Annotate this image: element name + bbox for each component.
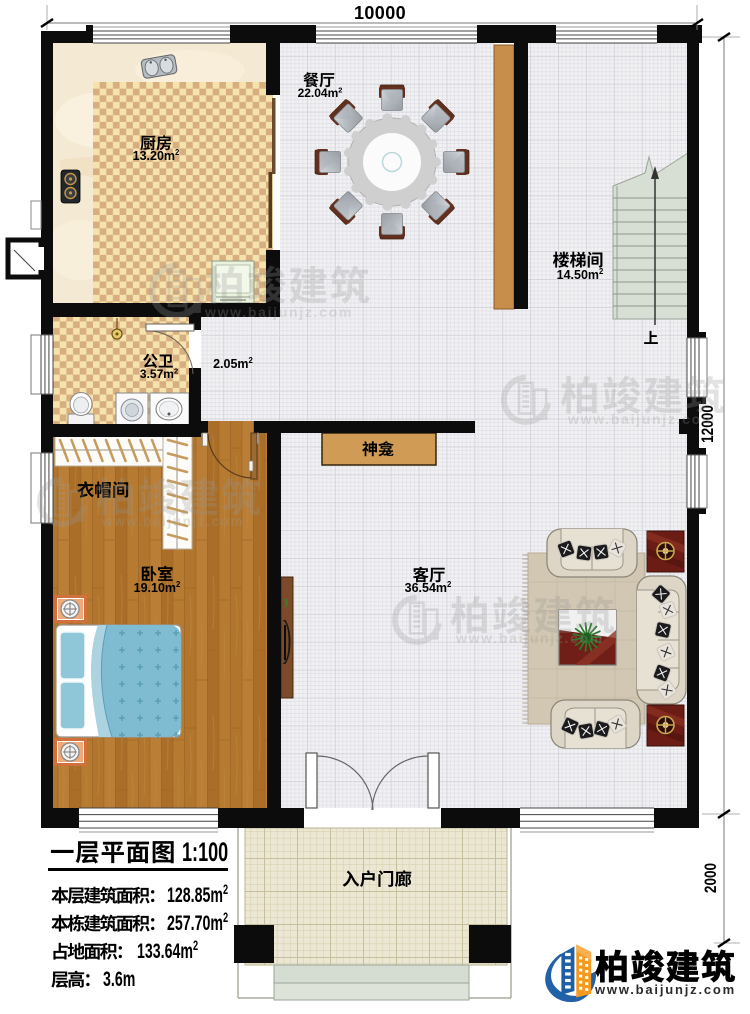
svg-text:1:100: 1:100 xyxy=(182,836,228,867)
svg-text:14.50m2: 14.50m2 xyxy=(557,267,604,282)
svg-text:10000: 10000 xyxy=(354,3,406,23)
svg-text:www.baijunjz.com: www.baijunjz.com xyxy=(101,514,244,529)
svg-text:www.baijunjz.com: www.baijunjz.com xyxy=(455,630,604,646)
svg-text:19.10m2: 19.10m2 xyxy=(134,580,181,595)
svg-text:133.64m2: 133.64m2 xyxy=(137,937,198,963)
svg-text:3.57m2: 3.57m2 xyxy=(140,366,178,381)
svg-text:www.baijunjz.com: www.baijunjz.com xyxy=(204,304,353,320)
svg-text:13.20m2: 13.20m2 xyxy=(133,148,180,163)
svg-text:2.05m2: 2.05m2 xyxy=(213,356,253,371)
svg-text:www.baijunjz.com: www.baijunjz.com xyxy=(594,982,736,997)
svg-text:www.baijunjz.com: www.baijunjz.com xyxy=(567,411,716,427)
svg-text:128.85m2: 128.85m2 xyxy=(167,881,228,907)
svg-text:3.6m: 3.6m xyxy=(103,967,135,991)
svg-text:2000: 2000 xyxy=(702,863,721,893)
svg-text:257.70m2: 257.70m2 xyxy=(167,909,228,935)
svg-text:22.04m2: 22.04m2 xyxy=(298,85,343,100)
svg-text:36.54m2: 36.54m2 xyxy=(405,580,452,595)
